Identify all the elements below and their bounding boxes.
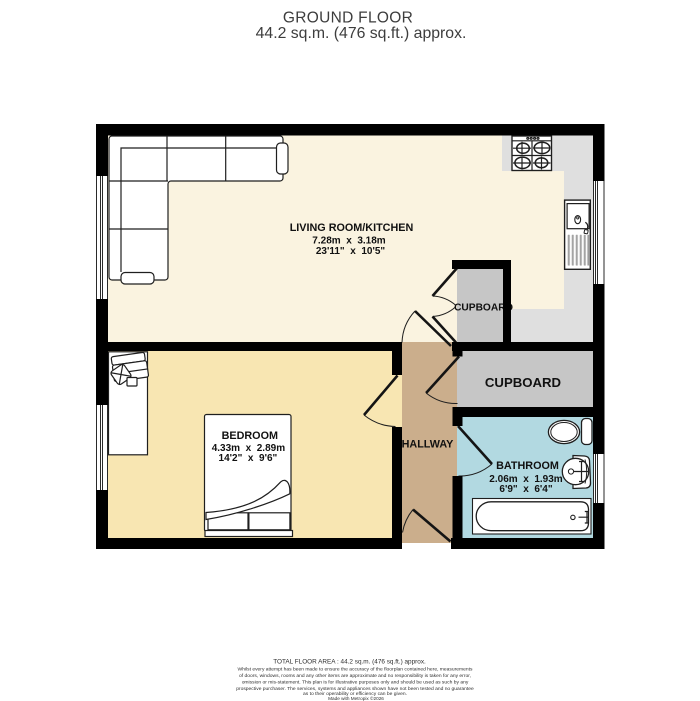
svg-text:of doors, windows, rooms and a: of doors, windows, rooms and any other i… — [239, 673, 471, 679]
svg-text:CUPBOARD: CUPBOARD — [485, 375, 561, 390]
svg-text:GROUND FLOOR: GROUND FLOOR — [283, 10, 413, 27]
svg-text:BATHROOM: BATHROOM — [496, 460, 559, 472]
svg-text:TOTAL FLOOR AREA : 44.2 sq.m.: TOTAL FLOOR AREA : 44.2 sq.m. (476 sq.ft… — [273, 659, 426, 666]
svg-text:BEDROOM: BEDROOM — [222, 430, 278, 442]
svg-text:6'9" x 6'4": 6'9" x 6'4" — [499, 484, 552, 495]
svg-text:Made with Metropix ©2026: Made with Metropix ©2026 — [328, 695, 384, 701]
svg-text:23'11" x 10'5": 23'11" x 10'5" — [316, 246, 386, 257]
svg-text:LIVING ROOM/KITCHEN: LIVING ROOM/KITCHEN — [290, 222, 414, 234]
svg-text:omission or mis-statement. Thi: omission or mis-statement. This plan is … — [242, 680, 469, 686]
svg-text:prospective purchaser. The ser: prospective purchaser. The services, sys… — [236, 686, 474, 692]
svg-text:14'2" x 9'6": 14'2" x 9'6" — [219, 453, 278, 464]
svg-text:44.2 sq.m. (476 sq.ft.) approx: 44.2 sq.m. (476 sq.ft.) approx. — [256, 25, 467, 42]
svg-text:Whilst every attempt has been: Whilst every attempt has been made to en… — [238, 666, 473, 672]
svg-text:HALLWAY: HALLWAY — [402, 439, 455, 451]
